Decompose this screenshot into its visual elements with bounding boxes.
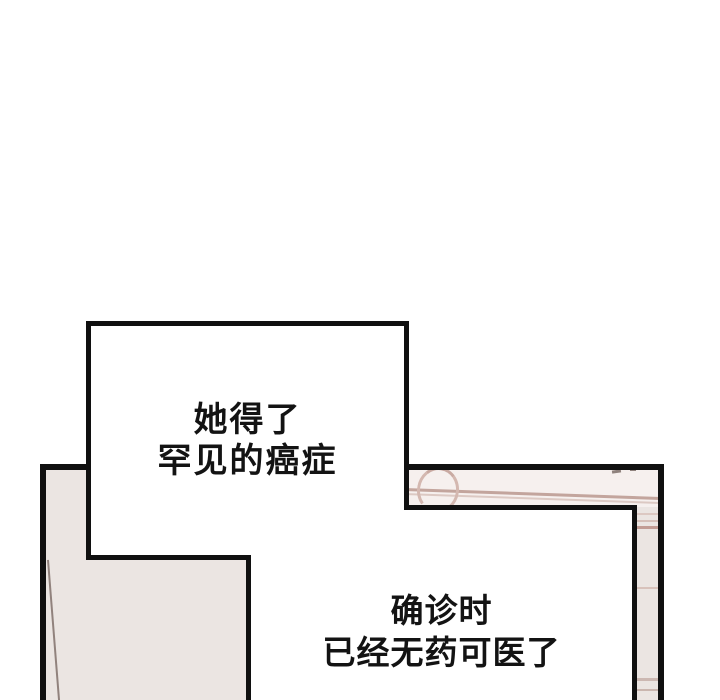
wall-strip-line xyxy=(637,520,658,522)
panel-frame-left xyxy=(40,464,46,700)
wall-strip-line xyxy=(637,678,658,681)
wall-strip-line xyxy=(637,513,658,515)
dialogue-line: 已经无药可医了 xyxy=(246,632,637,674)
dialogue-line: 确诊时 xyxy=(246,590,637,632)
dialogue-text-bottom: 确诊时 已经无药可医了 xyxy=(246,590,637,674)
speech-bubble-border xyxy=(404,505,637,510)
wall-strip-line xyxy=(637,689,658,691)
dialogue-text-top: 她得了 罕见的癌症 xyxy=(86,400,409,482)
speech-bubble-border xyxy=(86,555,251,560)
wall-strip-line xyxy=(637,526,658,529)
speech-bubble-border xyxy=(86,321,409,326)
comic-page: 她得了 罕见的癌症 确诊时 已经无药可医了 xyxy=(0,0,720,700)
dialogue-line: 她得了 xyxy=(86,400,409,441)
panel-frame-right xyxy=(658,464,664,700)
wall-strip-line xyxy=(637,587,658,589)
dialogue-line: 罕见的癌症 xyxy=(86,441,409,482)
